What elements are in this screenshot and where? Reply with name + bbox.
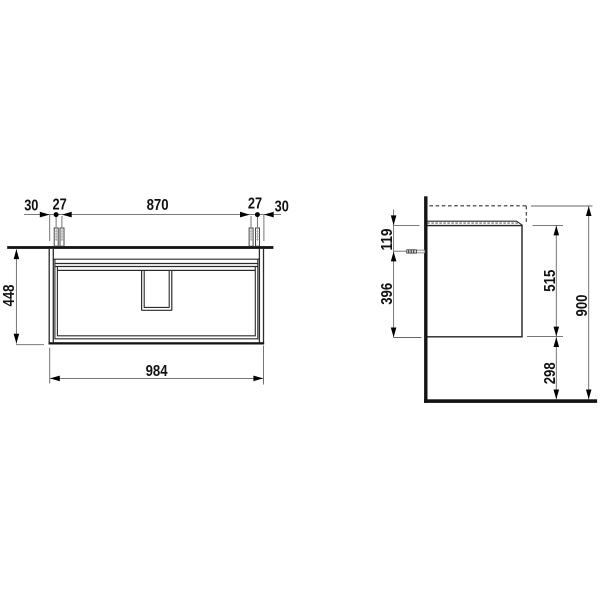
svg-text:984: 984	[146, 363, 168, 380]
svg-text:870: 870	[147, 197, 169, 214]
svg-text:448: 448	[1, 284, 18, 306]
svg-text:119: 119	[379, 228, 396, 250]
svg-text:298: 298	[542, 362, 559, 384]
svg-text:30: 30	[24, 197, 38, 214]
svg-text:27: 27	[248, 195, 262, 212]
svg-text:27: 27	[53, 196, 67, 213]
svg-text:396: 396	[379, 283, 396, 305]
svg-text:900: 900	[574, 294, 591, 316]
svg-text:30: 30	[275, 198, 289, 215]
svg-text:515: 515	[542, 270, 559, 292]
